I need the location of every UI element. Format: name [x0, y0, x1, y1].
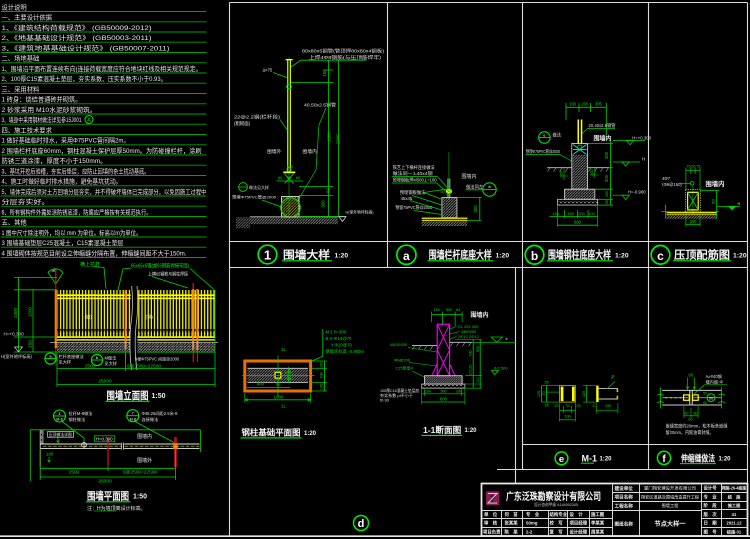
svg-text:分层夯实好。: 分层夯实好。 [2, 197, 50, 206]
svg-text:65x65x5钢(或65钢筋焊接牢固): 65x65x5钢(或65钢筋焊接牢固) [131, 263, 189, 270]
svg-text:围墙内: 围墙内 [303, 148, 318, 155]
svg-text:300: 300 [604, 151, 609, 159]
svg-text:广东泛珠勘察设计有限公司: 广东泛珠勘察设计有限公司 [506, 490, 601, 503]
svg-text:100: 100 [320, 362, 324, 368]
svg-text:(Φ6@150): (Φ6@150) [662, 182, 682, 187]
svg-text:1:20: 1:20 [615, 253, 629, 260]
svg-text:300: 300 [440, 390, 446, 394]
svg-text:75: 75 [686, 164, 690, 168]
svg-text:钢柱基础平面图: 钢柱基础平面图 [242, 427, 301, 438]
svg-text:3、《建筑地基基础设计规范》 (GB50007-2011): 3、《建筑地基基础设计规范》 (GB50007-2011) [2, 43, 170, 52]
svg-text:22@2.2钢(栏杆段): 22@2.2钢(栏杆段) [234, 114, 281, 121]
svg-text:9根Φ75PVC 间距@2000: 9根Φ75PVC 间距@2000 [135, 356, 180, 363]
svg-text:100: 100 [564, 415, 570, 419]
svg-text:e: e [559, 454, 564, 465]
svg-text:围墙内: 围墙内 [594, 135, 612, 143]
svg-text:50: 50 [710, 199, 715, 204]
svg-text:设 计: 设 计 [570, 511, 584, 518]
svg-text:4Φ2Φ200: 4Φ2Φ200 [390, 342, 408, 347]
svg-text:3 围墙基础垫层C25混凝土，C15素混凝土垫层: 3 围墙基础垫层C25混凝土，C15素混凝土垫层 [2, 238, 124, 247]
svg-text:120: 120 [582, 391, 586, 397]
svg-text:d: d [358, 518, 365, 530]
svg-text:70: 70 [565, 404, 569, 408]
svg-text:嵌缝宽度约20mm，松木板条嵌缝: 嵌缝宽度约20mm，松木板条嵌缝 [666, 423, 728, 430]
svg-text:50mg: 50mg [526, 521, 538, 526]
svg-text:(钢): (钢) [85, 314, 93, 321]
svg-text:e: e [543, 133, 545, 137]
svg-text:预留75PVC管@2000: 预留75PVC管@2000 [395, 204, 433, 211]
svg-text:工程名称: 工程名称 [615, 502, 634, 509]
svg-text:50: 50 [441, 190, 445, 194]
svg-text:Φ48.25间距2.5米-8: Φ48.25间距2.5米-8 [142, 410, 179, 417]
svg-text:三、采用材料: 三、采用材料 [2, 84, 40, 93]
svg-text:400: 400 [257, 382, 265, 387]
svg-text:建设单位: 建设单位 [614, 485, 634, 492]
svg-text:20.40x2.5钢管: 20.40x2.5钢管 [589, 122, 617, 129]
svg-text:100150: 100150 [469, 364, 473, 375]
svg-text:70: 70 [542, 391, 546, 395]
svg-text:H: H [642, 157, 645, 162]
svg-text:防锈三道涂漆，厚度不小于150mm。: 防锈三道涂漆，厚度不小于150mm。 [2, 156, 107, 165]
svg-text:25000: 25000 [98, 479, 112, 485]
svg-text:H=+0.300: H=+0.300 [4, 332, 25, 337]
svg-text:1:50: 1:50 [133, 494, 147, 501]
svg-text:≠-0.500: ≠-0.500 [494, 366, 508, 371]
svg-text:何 苗: 何 苗 [505, 511, 519, 518]
svg-text:6、所有钢构件外露处涂防锈底漆，防腐应严格按有关规范执行。: 6、所有钢构件外露处涂防锈底漆，防腐应严格按有关规范执行。 [2, 207, 152, 216]
svg-text:2 砂浆采用 M10水泥砂浆砌筑。: 2 砂浆采用 M10水泥砂浆砌筑。 [2, 105, 97, 114]
svg-text:H=+0.300: H=+0.300 [632, 135, 651, 140]
svg-text:8: 8 [592, 404, 594, 408]
svg-text:围墙内: 围墙内 [471, 311, 489, 319]
svg-text:a: a [403, 249, 410, 263]
svg-text:做法: 做法 [553, 132, 562, 139]
svg-text:200: 200 [690, 219, 698, 224]
svg-text:120: 120 [537, 391, 541, 397]
svg-text:900: 900 [476, 346, 480, 352]
svg-text:1500: 1500 [28, 306, 33, 317]
svg-text:见大样: 见大样 [59, 359, 72, 366]
svg-text:1:20: 1:20 [496, 253, 510, 260]
svg-text:25: 25 [576, 404, 580, 408]
svg-text:H: H [738, 202, 741, 206]
svg-text:100: 100 [456, 390, 462, 394]
svg-text:1:20: 1:20 [465, 428, 478, 434]
svg-text:1-1断面图: 1-1断面图 [423, 424, 462, 435]
svg-text:留20mm，内嵌油膏封缝。: 留20mm，内嵌油膏封缝。 [666, 429, 714, 436]
svg-text:压顶配筋图: 压顶配筋图 [674, 248, 730, 262]
svg-text:B-X-Φ10@70: B-X-Φ10@70 [326, 336, 353, 341]
svg-text:60: 60 [326, 188, 331, 193]
svg-text:50: 50 [703, 391, 707, 395]
svg-text:50: 50 [703, 401, 707, 405]
svg-text:H(室外地坪标高): H(室外地坪标高) [1, 353, 33, 360]
svg-text:伸缩缝做法: 伸缩缝做法 [680, 452, 715, 463]
svg-text:200: 200 [578, 211, 585, 216]
svg-text:设计号: 设计号 [704, 485, 718, 492]
svg-text:41: 41 [732, 512, 737, 517]
svg-text:600: 600 [574, 220, 582, 225]
svg-text:围墙外: 围墙外 [267, 148, 282, 155]
svg-text:结构专业: 结构专业 [550, 511, 568, 518]
svg-text:项目名称: 项目名称 [615, 494, 634, 501]
svg-text:翔安区道路及围墙改造提升工程: 翔安区道路及围墙改造提升工程 [641, 493, 700, 500]
svg-text:厦门翔安建设开发有限公司: 厦门翔安建设开发有限公司 [644, 485, 696, 492]
svg-text:H=-0.900: H=-0.900 [628, 189, 646, 194]
svg-text:设计经理: 设计经理 [570, 528, 588, 535]
svg-text:60: 60 [684, 411, 688, 415]
svg-text:设计咨询甲级 A144002345: 设计咨询甲级 A144002345 [534, 502, 578, 507]
svg-text:做法同左: 做法同左 [466, 183, 484, 190]
svg-text:H(室外地坪标高): H(室外地坪标高) [346, 209, 375, 215]
svg-text:40.50x2.5钢管: 40.50x2.5钢管 [304, 102, 337, 109]
svg-text:五、其他: 五、其他 [2, 218, 28, 227]
svg-text:四、施工技术要求: 四、施工技术要求 [2, 125, 53, 134]
svg-text:60: 60 [688, 417, 692, 421]
svg-text:审 核: 审 核 [484, 520, 498, 527]
svg-text:2500: 2500 [85, 363, 96, 368]
svg-text:4Φ7: 4Φ7 [662, 176, 671, 181]
svg-text:预埋Φ75PVC管@2000: 预埋Φ75PVC管@2000 [232, 194, 277, 200]
svg-text:做法同一:L40x4钢: 做法同一:L40x4钢 [393, 170, 433, 177]
svg-text:图 号: 图 号 [704, 528, 718, 535]
svg-text:2500: 2500 [69, 470, 80, 475]
svg-text:80: 80 [276, 382, 281, 387]
svg-text:600: 600 [440, 397, 448, 402]
svg-text:版 次: 版 次 [704, 511, 718, 518]
svg-text:45x45: 45x45 [401, 196, 413, 201]
svg-text:2、100厚C15素混凝土垫层，夯实系数、压实系数不小于0.: 2、100厚C15素混凝土垫层，夯实系数、压实系数不小于0.93。 [2, 74, 167, 83]
svg-text:围墙钢柱底座大样: 围墙钢柱底座大样 [548, 248, 611, 262]
svg-text:A: A [87, 118, 91, 124]
svg-text:5、墙体完成后须对土方回填分层夯实，并不得破坏墙体已完成部分: 5、墙体完成后须对土方回填分层夯实，并不得破坏墙体已完成部分，以免因施工过程中 [2, 187, 207, 196]
svg-text:专 业: 专 业 [526, 511, 540, 518]
svg-text:图纸名称: 图纸名称 [615, 521, 634, 528]
svg-text:1、《建筑结构荷载规范》 (GB50009-2012): 1、《建筑结构荷载规范》 (GB50009-2012) [2, 23, 152, 32]
svg-text:1500: 1500 [327, 132, 332, 142]
svg-text:Φ6@200: Φ6@200 [394, 357, 411, 362]
svg-text:见大样: 见大样 [105, 360, 118, 367]
svg-text:围墙立面图: 围墙立面图 [107, 389, 149, 402]
svg-text:9@2500=22500: 9@2500=22500 [127, 363, 161, 368]
svg-text:140: 140 [320, 384, 324, 390]
svg-text:1、围墙沿平面布置连续布向(连接荷载宽度应符合地块红线及相关: 1、围墙沿平面布置连续布向(连接荷载宽度应符合地块红线及相关规范规定。 [2, 64, 202, 73]
svg-text:100: 100 [46, 451, 54, 456]
svg-text:M-8: M-8 [56, 418, 62, 422]
svg-text:1:20: 1:20 [733, 253, 747, 260]
svg-text:M-8: M-8 [130, 417, 136, 421]
svg-text:25: 25 [554, 404, 558, 408]
svg-text:4 围墙砌体按规范目前设立伸缩缝分隔布置，伸缩缝间距不大于1: 4 围墙砌体按规范目前设立伸缩缝分隔布置，伸缩缝间距不大于150m. [2, 248, 187, 257]
svg-text:2、《地基基础设计规范》 (GB50003-2011): 2、《地基基础设计规范》 (GB50003-2011) [2, 33, 152, 42]
svg-text:1 做好基础临时排水，采用Φ75PVC管间隔2m。: 1 做好基础临时排水，采用Φ75PVC管间隔2m。 [2, 136, 130, 145]
svg-text:压顶做法详图: 压顶做法详图 [49, 432, 72, 437]
svg-text:35: 35 [544, 404, 548, 408]
svg-text:(粗糙面): (粗糙面) [234, 120, 251, 127]
svg-text:围墙外: 围墙外 [137, 457, 152, 464]
svg-text:Δ≠75: Δ≠75 [263, 68, 273, 73]
svg-text:围墙平面图: 围墙平面图 [87, 490, 129, 503]
svg-text:Y.Φ10@70: Y.Φ10@70 [331, 343, 352, 348]
svg-text:700: 700 [469, 350, 473, 356]
svg-text:300: 300 [445, 307, 452, 312]
svg-text:100: 100 [553, 211, 560, 216]
svg-text:M-1: M-1 [582, 453, 598, 463]
svg-text:围墙大样: 围墙大样 [283, 248, 330, 262]
svg-text:2021.12: 2021.12 [726, 521, 742, 526]
svg-text:1:20: 1:20 [304, 431, 317, 437]
svg-text:设计说明: 设计说明 [2, 2, 27, 11]
svg-text:100: 100 [569, 102, 577, 107]
svg-text:100: 100 [588, 211, 595, 216]
svg-text:节点大样一: 节点大样一 [655, 520, 687, 528]
svg-text:项目经理: 项目经理 [570, 520, 588, 527]
svg-text:结施-31: 结施-31 [727, 528, 742, 535]
svg-text:李某某: 李某某 [590, 520, 605, 527]
svg-text:50: 50 [605, 200, 609, 204]
svg-text:(钢): (钢) [146, 314, 154, 321]
svg-text:翔施-26-4结施: 翔施-26-4结施 [722, 485, 747, 492]
svg-text:1:50: 1:50 [152, 393, 166, 400]
svg-text:1:20: 1:20 [335, 253, 349, 260]
svg-text:1000: 1000 [274, 394, 284, 399]
svg-text:300: 300 [321, 200, 326, 208]
svg-text:M-1 h=300: M-1 h=300 [326, 330, 347, 335]
svg-text:围墙内: 围墙内 [462, 173, 477, 180]
svg-text:1L: 1L [281, 347, 286, 352]
svg-text:64: 64 [456, 307, 461, 312]
svg-text:1L: 1L [281, 404, 286, 409]
svg-text:陈 某: 陈 某 [505, 528, 519, 535]
svg-text:9@2500=22500: 9@2500=22500 [123, 470, 157, 475]
svg-text:1 砖身：烧结普通砖并砌筑。: 1 砖身：烧结普通砖并砌筑。 [2, 95, 82, 104]
svg-text:60: 60 [288, 369, 292, 373]
svg-text:200: 200 [581, 102, 589, 107]
svg-text:60: 60 [693, 411, 697, 415]
svg-text:基础底标高.-0.900m: 基础底标高.-0.900m [326, 348, 365, 355]
svg-text:周某某: 周某某 [591, 528, 605, 535]
svg-text:2Φ12.2Φ12: 2Φ12.2Φ12 [458, 334, 480, 339]
svg-text:单 位: 单 位 [484, 511, 498, 518]
svg-text:4、施工时做好临时排水措施，避免基坑扰动。: 4、施工时做好临时排水措施，避免基坑扰动。 [2, 177, 122, 186]
svg-text:围墙栏杆底座大样: 围墙栏杆底座大样 [429, 248, 492, 262]
svg-text:围墙内: 围墙内 [137, 433, 152, 440]
svg-text:校 写: 校 写 [550, 520, 564, 527]
svg-text:25000: 25000 [98, 379, 112, 385]
svg-text:1:20: 1:20 [719, 457, 732, 463]
svg-text:围墙工程: 围墙工程 [662, 502, 680, 509]
svg-text:施工图: 施工图 [591, 511, 605, 518]
svg-text:100: 100 [287, 164, 294, 169]
svg-text:C25垫层#: C25垫层# [395, 365, 413, 371]
svg-text:H=0.300: H=0.300 [96, 437, 113, 442]
svg-text:300: 300 [473, 205, 478, 213]
svg-text:上横65钢筋与钢柱焊接: 上横65钢筋与钢柱焊接 [148, 271, 188, 278]
svg-text:施工图: 施工图 [728, 502, 741, 509]
svg-text:1:20: 1:20 [600, 457, 613, 463]
svg-text:305: 305 [595, 102, 603, 107]
svg-text:复 写: 复 写 [549, 528, 564, 535]
svg-text:3、墙身中采用钢材做法详见参15J001: 3、墙身中采用钢材做法详见参15J001 [2, 115, 82, 124]
svg-text:150: 150 [590, 170, 594, 176]
svg-text:项目负责: 项目负责 [483, 528, 501, 535]
svg-text:100: 100 [425, 390, 431, 394]
svg-text:150: 150 [605, 404, 611, 408]
svg-text:日 期: 日 期 [704, 520, 718, 527]
svg-text:100: 100 [476, 377, 480, 383]
svg-text:张某某: 张某某 [505, 520, 519, 527]
svg-text:连接做法: 连接做法 [142, 416, 159, 423]
svg-text:一、主要设计依据: 一、主要设计依据 [2, 13, 53, 22]
svg-text:预埋Φ75PVC管@2000: 预埋Φ75PVC管@2000 [526, 148, 560, 155]
svg-text:35: 35 [544, 380, 548, 384]
svg-text:50: 50 [709, 395, 714, 400]
svg-text:结 施: 结 施 [728, 493, 741, 500]
svg-text:c: c [657, 249, 664, 263]
svg-text:阶 段: 阶 段 [704, 502, 718, 509]
svg-text:150: 150 [28, 340, 33, 348]
svg-text:围墙内: 围墙内 [706, 179, 725, 188]
svg-text:100: 100 [434, 307, 441, 312]
svg-text:2300: 2300 [13, 307, 18, 318]
svg-text:150: 150 [322, 69, 327, 77]
svg-text:b: b [531, 249, 538, 263]
svg-text:钢柱做法: 钢柱做法 [69, 416, 86, 423]
svg-text:专 业: 专 业 [704, 493, 718, 500]
svg-text:300: 300 [604, 174, 609, 182]
svg-text:60: 60 [688, 372, 693, 377]
svg-text:做法见大样: 做法见大样 [249, 184, 269, 190]
svg-text:150: 150 [605, 191, 609, 197]
svg-text:700: 700 [320, 372, 324, 378]
svg-text:100: 100 [568, 211, 575, 216]
svg-text:二、场地基础: 二、场地基础 [2, 54, 40, 63]
svg-text:3、基坑开挖后验槽，夯实后垫层，应防止回填的杂土扰动基底。: 3、基坑开挖后验槽，夯实后垫层，应防止回填的杂土扰动基底。 [2, 166, 150, 175]
svg-text:2300: 2300 [336, 134, 341, 144]
svg-text:1 图中尺寸除注明外，均以 mm 为单位。标高以m为单位。: 1 图中尺寸除注明外，均以 mm 为单位。标高以m为单位。 [2, 228, 142, 237]
svg-text:80x80x5钢管(管顶焊80x80x4钢板): 80x80x5钢管(管顶焊80x80x4钢板) [302, 48, 385, 55]
svg-text:2-2: 2-2 [526, 529, 533, 534]
svg-text:2 围墙栏杆底座60mm，钢柱混凝土保护层厚50mm。为防碰: 2 围墙栏杆底座60mm，钢柱混凝土保护层厚50mm。为防碰撞栏杆，涂刷 [2, 146, 202, 155]
svg-text:f0.93: f0.93 [380, 397, 390, 402]
svg-text:1: 1 [264, 248, 271, 263]
svg-text:预埋钢板焊M500,L=100: 预埋钢板焊M500,L=100 [393, 177, 438, 184]
